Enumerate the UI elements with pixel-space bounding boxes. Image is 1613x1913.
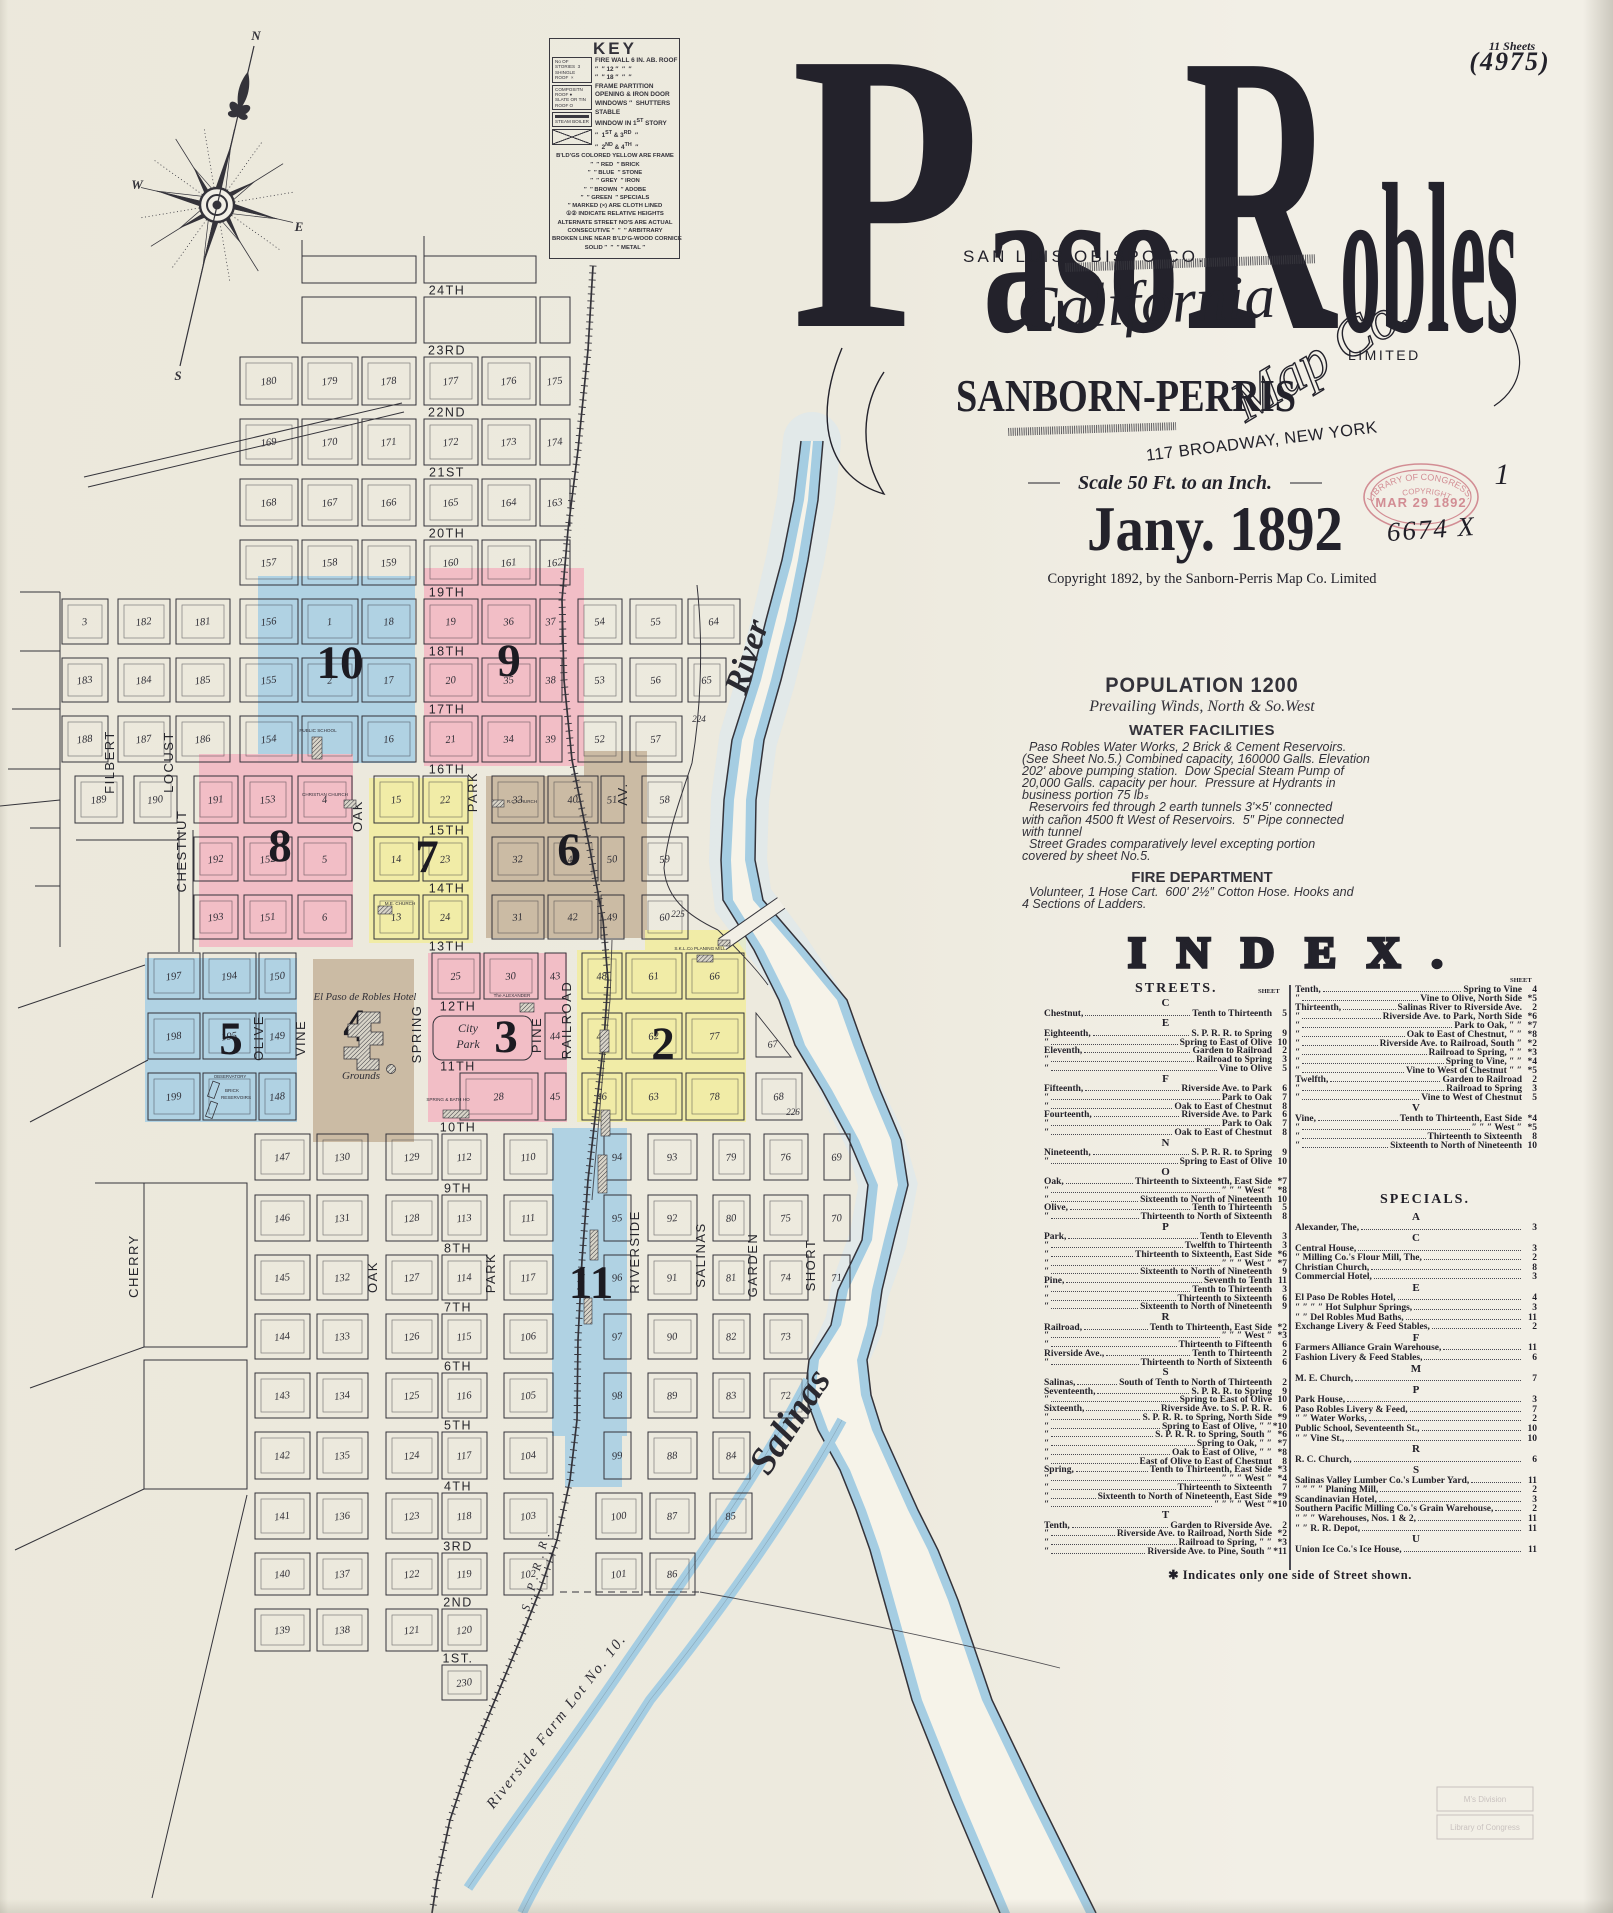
- svg-text:68: 68: [773, 1091, 786, 1103]
- svg-text:21ST: 21ST: [429, 466, 465, 480]
- svg-text:10TH: 10TH: [440, 1121, 477, 1135]
- svg-text:94: 94: [611, 1152, 624, 1164]
- svg-text:74: 74: [780, 1272, 793, 1284]
- svg-text:92: 92: [666, 1213, 679, 1225]
- svg-text:117: 117: [520, 1272, 537, 1285]
- svg-text:128: 128: [403, 1213, 421, 1226]
- svg-text:170: 170: [321, 437, 339, 450]
- svg-text:17TH: 17TH: [429, 703, 466, 717]
- svg-text:164: 164: [500, 497, 518, 510]
- svg-text:73: 73: [780, 1331, 792, 1343]
- svg-text:15: 15: [390, 794, 402, 806]
- svg-text:30: 30: [504, 971, 517, 983]
- svg-text:168: 168: [260, 497, 278, 510]
- svg-text:25: 25: [450, 971, 462, 983]
- svg-text:Grounds: Grounds: [342, 1070, 380, 1082]
- svg-text:S: S: [174, 368, 181, 383]
- svg-text:147: 147: [274, 1152, 292, 1165]
- svg-text:98: 98: [611, 1390, 624, 1402]
- svg-text:13TH: 13TH: [429, 940, 466, 954]
- svg-text:171: 171: [380, 437, 397, 450]
- svg-text:184: 184: [135, 675, 153, 688]
- svg-text:178: 178: [380, 376, 398, 389]
- svg-text:5: 5: [219, 1013, 243, 1065]
- svg-text:180: 180: [260, 376, 278, 389]
- svg-text:155: 155: [260, 675, 277, 688]
- svg-text:78: 78: [709, 1091, 722, 1103]
- svg-text:162: 162: [546, 557, 564, 570]
- svg-text:Scale 50 Ft. to an Inch.: Scale 50 Ft. to an Inch.: [1078, 472, 1272, 494]
- svg-text:39: 39: [544, 734, 557, 746]
- svg-text:14: 14: [390, 854, 403, 866]
- svg-text:P: P: [791, 0, 981, 413]
- svg-text:24TH: 24TH: [429, 284, 466, 298]
- svg-text:24: 24: [439, 912, 452, 924]
- svg-text:The ALEXANDER: The ALEXANDER: [494, 993, 531, 998]
- svg-text:7TH: 7TH: [444, 1301, 472, 1315]
- svg-text:PARK: PARK: [483, 1253, 498, 1293]
- svg-text:64: 64: [708, 616, 721, 628]
- svg-text:1ST.: 1ST.: [442, 1652, 473, 1666]
- svg-text:CHESTNUT: CHESTNUT: [174, 810, 189, 893]
- svg-text:FILBERT: FILBERT: [102, 730, 117, 794]
- svg-text:101: 101: [610, 1569, 627, 1582]
- svg-text:191: 191: [207, 794, 224, 807]
- svg-text:SHORT: SHORT: [803, 1239, 818, 1292]
- svg-text:224: 224: [692, 714, 706, 724]
- svg-text:110: 110: [520, 1152, 537, 1165]
- svg-text:163: 163: [546, 497, 563, 510]
- svg-text:133: 133: [334, 1331, 351, 1344]
- svg-text:56: 56: [650, 675, 663, 687]
- svg-text:113: 113: [456, 1213, 472, 1226]
- svg-text:71: 71: [831, 1272, 843, 1284]
- svg-text:173: 173: [500, 437, 517, 450]
- svg-text:Copyright 1892, by the Sanborn: Copyright 1892, by the Sanborn-Perris Ma…: [1047, 571, 1377, 587]
- svg-text:140: 140: [274, 1569, 292, 1582]
- svg-text:111: 111: [520, 1213, 535, 1226]
- svg-text:2: 2: [651, 1018, 675, 1070]
- svg-text:16TH: 16TH: [429, 763, 466, 777]
- svg-text:38: 38: [544, 675, 557, 687]
- svg-text:1: 1: [1495, 458, 1510, 491]
- svg-text:82: 82: [725, 1331, 738, 1343]
- svg-text:136: 136: [334, 1511, 352, 1524]
- svg-text:28: 28: [493, 1091, 506, 1103]
- svg-text:LOCUST: LOCUST: [161, 731, 176, 793]
- svg-text:139: 139: [274, 1625, 292, 1638]
- svg-text:2ND: 2ND: [443, 1596, 473, 1610]
- svg-text:PINE: PINE: [529, 1017, 544, 1053]
- svg-text:45: 45: [549, 1091, 561, 1103]
- svg-text:189: 189: [90, 794, 108, 807]
- svg-text:141: 141: [274, 1511, 291, 1524]
- svg-text:176: 176: [500, 376, 518, 389]
- svg-text:SALINAS: SALINAS: [693, 1222, 708, 1287]
- svg-text:10: 10: [317, 637, 364, 689]
- svg-text:17: 17: [383, 675, 396, 687]
- svg-text:23RD: 23RD: [428, 344, 466, 358]
- svg-text:226: 226: [786, 1107, 800, 1117]
- svg-text:50: 50: [606, 854, 619, 866]
- svg-text:6TH: 6TH: [444, 1360, 472, 1374]
- svg-text:SPRING & BATH HO: SPRING & BATH HO: [426, 1097, 470, 1102]
- svg-text:129: 129: [403, 1152, 421, 1165]
- svg-text:18TH: 18TH: [429, 645, 466, 659]
- svg-text:OAK: OAK: [365, 1261, 380, 1293]
- svg-text:MAR 29 1892: MAR 29 1892: [1375, 495, 1466, 510]
- svg-text:159: 159: [380, 557, 398, 570]
- svg-text:3RD: 3RD: [443, 1540, 473, 1554]
- svg-text:22ND: 22ND: [428, 406, 466, 420]
- svg-text:3: 3: [494, 1011, 518, 1063]
- svg-text:183: 183: [76, 675, 93, 688]
- svg-text:179: 179: [321, 376, 339, 389]
- svg-text:RAILROAD: RAILROAD: [559, 981, 574, 1059]
- svg-text:52: 52: [594, 734, 607, 746]
- svg-text:166: 166: [380, 497, 398, 510]
- svg-text:36: 36: [502, 616, 515, 628]
- svg-text:79: 79: [725, 1152, 738, 1164]
- svg-text:20TH: 20TH: [429, 527, 466, 541]
- svg-text:75: 75: [780, 1213, 792, 1225]
- svg-text:134: 134: [334, 1390, 352, 1403]
- svg-text:158: 158: [321, 557, 339, 570]
- svg-text:8TH: 8TH: [444, 1242, 472, 1256]
- svg-text:14TH: 14TH: [429, 882, 466, 896]
- svg-text:RESERVOIRS: RESERVOIRS: [221, 1095, 251, 1100]
- svg-text:18: 18: [383, 616, 396, 628]
- svg-text:AV.: AV.: [615, 782, 630, 805]
- svg-text:123: 123: [403, 1511, 420, 1524]
- svg-text:9TH: 9TH: [444, 1182, 472, 1196]
- svg-text:20: 20: [445, 675, 458, 687]
- svg-text:185: 185: [194, 675, 211, 688]
- svg-text:146: 146: [274, 1213, 292, 1226]
- svg-text:Library of Congress: Library of Congress: [1450, 1823, 1520, 1832]
- svg-text:CHRISTIAN CHURCH: CHRISTIAN CHURCH: [302, 792, 348, 797]
- svg-text:VINE: VINE: [293, 1020, 308, 1056]
- svg-text:19TH: 19TH: [429, 586, 466, 600]
- svg-text:RIVERSIDE: RIVERSIDE: [627, 1210, 642, 1294]
- svg-text:132: 132: [334, 1272, 352, 1285]
- svg-text:61: 61: [648, 971, 660, 983]
- svg-text:175: 175: [546, 376, 563, 389]
- svg-text:N: N: [250, 28, 261, 43]
- svg-text:124: 124: [403, 1450, 421, 1463]
- svg-text:225: 225: [671, 909, 685, 919]
- svg-text:145: 145: [274, 1272, 291, 1285]
- svg-text:100: 100: [610, 1511, 628, 1524]
- svg-text:69: 69: [831, 1152, 844, 1164]
- svg-text:167: 167: [321, 497, 339, 510]
- svg-text:PARK: PARK: [465, 772, 480, 812]
- svg-text:4TH: 4TH: [444, 1480, 472, 1494]
- svg-text:83: 83: [725, 1390, 737, 1402]
- svg-text:42: 42: [567, 912, 580, 924]
- svg-text:57: 57: [650, 734, 663, 746]
- svg-text:199: 199: [165, 1091, 183, 1104]
- svg-text:84: 84: [725, 1450, 738, 1462]
- svg-text:City: City: [458, 1021, 479, 1035]
- svg-text:181: 181: [194, 616, 211, 629]
- svg-text:6674 X: 6674 X: [1386, 511, 1477, 547]
- svg-text:148: 148: [269, 1091, 287, 1104]
- svg-text:California: California: [1015, 263, 1277, 344]
- svg-text:76: 76: [780, 1152, 793, 1164]
- svg-text:131: 131: [334, 1213, 351, 1226]
- svg-text:174: 174: [546, 437, 564, 450]
- svg-text:137: 137: [334, 1569, 352, 1582]
- svg-text:142: 142: [274, 1450, 292, 1463]
- svg-text:58: 58: [659, 794, 672, 806]
- svg-text:149: 149: [269, 1031, 287, 1044]
- svg-text:157: 157: [260, 557, 278, 570]
- svg-text:88: 88: [666, 1450, 679, 1462]
- svg-text:91: 91: [666, 1272, 678, 1284]
- svg-text:194: 194: [221, 971, 239, 984]
- svg-text:GARDEN: GARDEN: [745, 1233, 760, 1298]
- svg-text:114: 114: [456, 1272, 473, 1285]
- svg-text:172: 172: [442, 437, 460, 450]
- svg-text:150: 150: [269, 971, 287, 984]
- svg-text:230: 230: [456, 1677, 474, 1690]
- svg-text:117: 117: [456, 1450, 473, 1463]
- svg-text:99: 99: [611, 1450, 624, 1462]
- svg-text:120: 120: [456, 1625, 474, 1638]
- svg-text:187: 187: [135, 734, 153, 747]
- svg-text:160: 160: [442, 557, 460, 570]
- svg-text:53: 53: [594, 675, 606, 687]
- svg-text:190: 190: [147, 794, 165, 807]
- svg-text:188: 188: [76, 734, 94, 747]
- svg-text:5TH: 5TH: [444, 1419, 472, 1433]
- svg-text:16: 16: [383, 734, 396, 746]
- svg-text:177: 177: [442, 376, 460, 389]
- svg-text:60: 60: [659, 912, 672, 924]
- svg-text:8: 8: [268, 820, 292, 872]
- svg-text:103: 103: [520, 1511, 537, 1524]
- svg-text:77: 77: [709, 1031, 722, 1043]
- svg-text:153: 153: [259, 794, 276, 807]
- svg-text:E: E: [294, 219, 304, 234]
- svg-text:22: 22: [439, 794, 452, 806]
- svg-text:198: 198: [165, 1031, 183, 1044]
- svg-text:37: 37: [544, 616, 557, 628]
- svg-text:11TH: 11TH: [440, 1060, 476, 1074]
- svg-text:32: 32: [511, 854, 524, 866]
- svg-text:21: 21: [445, 734, 457, 746]
- svg-text:138: 138: [334, 1625, 352, 1638]
- svg-text:182: 182: [135, 616, 153, 629]
- svg-text:OLIVE: OLIVE: [251, 1015, 266, 1061]
- svg-text:116: 116: [456, 1390, 473, 1403]
- svg-text:165: 165: [442, 497, 459, 510]
- svg-text:127: 127: [403, 1272, 421, 1285]
- svg-text:186: 186: [194, 734, 212, 747]
- svg-text:80: 80: [725, 1213, 738, 1225]
- svg-text:PUBLIC SCHOOL: PUBLIC SCHOOL: [299, 728, 337, 733]
- svg-text:151: 151: [259, 912, 276, 925]
- svg-text:121: 121: [403, 1625, 420, 1638]
- svg-text:130: 130: [334, 1152, 352, 1165]
- svg-text:125: 125: [403, 1390, 420, 1403]
- svg-text:40: 40: [567, 794, 580, 806]
- svg-text:R.C. CHURCH: R.C. CHURCH: [507, 799, 537, 804]
- svg-text:49: 49: [606, 912, 619, 924]
- svg-text:154: 154: [260, 734, 278, 747]
- svg-text:86: 86: [666, 1569, 679, 1581]
- svg-text:7: 7: [415, 831, 439, 883]
- svg-text:126: 126: [403, 1331, 421, 1344]
- svg-text:Jany. 1892: Jany. 1892: [1087, 493, 1343, 564]
- svg-text:118: 118: [456, 1511, 473, 1524]
- svg-text:135: 135: [334, 1450, 351, 1463]
- svg-text:112: 112: [456, 1152, 473, 1165]
- svg-text:SPRING: SPRING: [409, 1005, 424, 1064]
- svg-text:144: 144: [274, 1331, 292, 1344]
- svg-text:55: 55: [650, 616, 662, 628]
- svg-text:104: 104: [520, 1450, 538, 1463]
- svg-text:M.E. CHURCH: M.E. CHURCH: [385, 901, 416, 906]
- svg-text:BRICK: BRICK: [225, 1088, 240, 1093]
- svg-text:89: 89: [666, 1390, 679, 1402]
- svg-text:90: 90: [666, 1331, 679, 1343]
- svg-text:CHERRY: CHERRY: [126, 1234, 141, 1298]
- svg-text:M's Division: M's Division: [1464, 1795, 1506, 1804]
- svg-text:143: 143: [274, 1390, 291, 1403]
- svg-text:95: 95: [611, 1213, 623, 1225]
- svg-text:115: 115: [456, 1331, 472, 1344]
- svg-text:119: 119: [456, 1569, 473, 1582]
- svg-text:W: W: [131, 177, 144, 192]
- svg-text:192: 192: [207, 854, 225, 867]
- svg-text:12TH: 12TH: [440, 1000, 477, 1014]
- svg-text:161: 161: [500, 557, 517, 570]
- svg-text:9: 9: [497, 635, 521, 687]
- svg-text:23: 23: [439, 854, 451, 866]
- svg-text:Park: Park: [455, 1037, 480, 1051]
- svg-text:LIMITED: LIMITED: [1348, 347, 1421, 363]
- svg-text:156: 156: [260, 616, 278, 629]
- svg-text:11 Sheets: 11 Sheets: [1489, 39, 1536, 53]
- svg-text:81: 81: [725, 1272, 737, 1284]
- svg-text:31: 31: [511, 912, 524, 924]
- svg-text:6: 6: [557, 824, 581, 876]
- svg-text:SANBORN-PERRIS: SANBORN-PERRIS: [956, 370, 1296, 421]
- svg-text:105: 105: [520, 1390, 537, 1403]
- svg-text:87: 87: [666, 1511, 679, 1523]
- svg-text:193: 193: [207, 912, 224, 925]
- svg-text:106: 106: [520, 1331, 538, 1344]
- svg-text:19: 19: [445, 616, 458, 628]
- svg-text:65: 65: [701, 675, 713, 687]
- svg-text:93: 93: [666, 1152, 678, 1164]
- svg-text:66: 66: [709, 971, 722, 983]
- svg-text:OBSERVATORY: OBSERVATORY: [214, 1074, 247, 1079]
- svg-text:63: 63: [648, 1091, 660, 1103]
- svg-text:97: 97: [611, 1331, 624, 1343]
- svg-text:122: 122: [403, 1569, 421, 1582]
- svg-text:34: 34: [502, 734, 515, 746]
- svg-text:85: 85: [725, 1511, 737, 1523]
- svg-text:59: 59: [659, 854, 672, 866]
- svg-text:197: 197: [165, 971, 183, 984]
- svg-text:70: 70: [831, 1213, 844, 1225]
- svg-text:S.K.L.Co PLANING MILL: S.K.L.Co PLANING MILL: [674, 946, 726, 951]
- svg-text:54: 54: [594, 616, 607, 628]
- svg-text:El Paso de Robles Hotel: El Paso de Robles Hotel: [313, 992, 417, 1003]
